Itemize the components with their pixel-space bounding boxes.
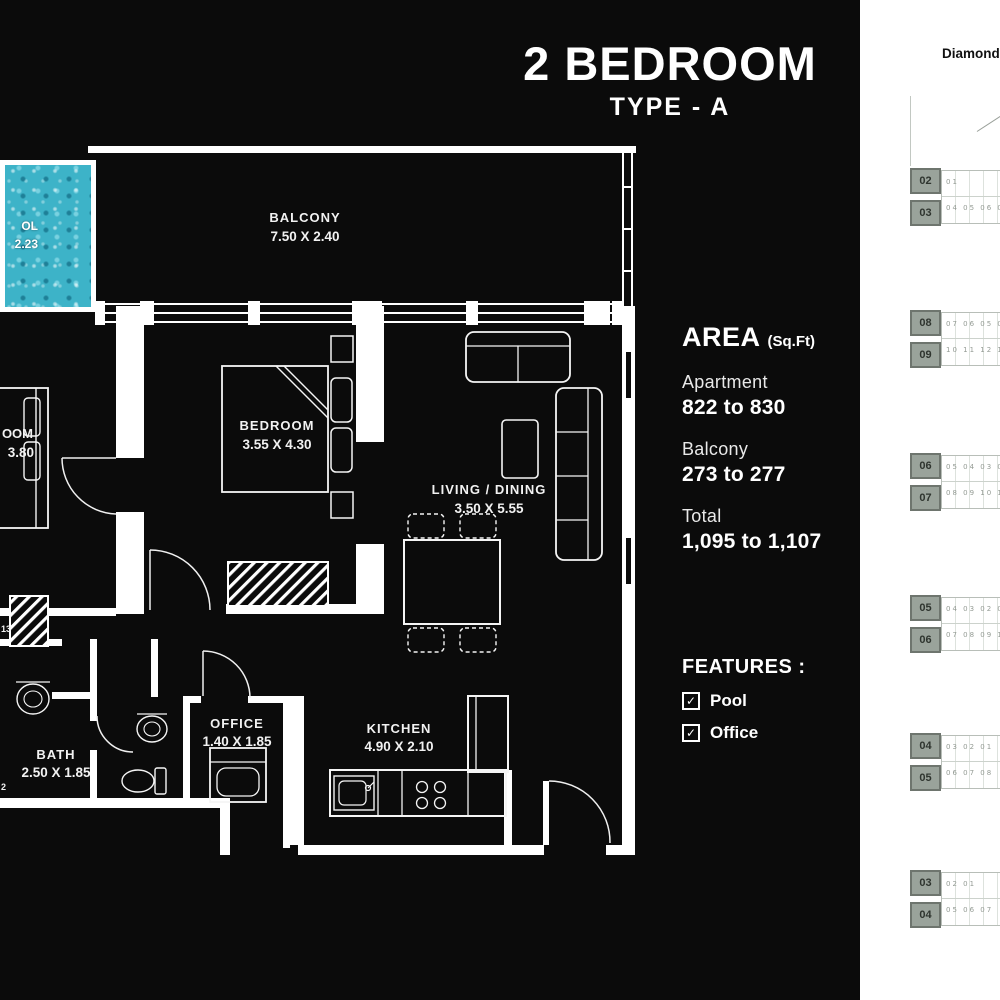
keyplan-plate: 01 04 05 06 07 08 09 [941,170,1000,224]
area-row-apartment: Apartment 822 to 830 [682,372,852,420]
brand-label: Diamondz [942,46,1000,61]
kitchen-fixtures [330,696,508,816]
keyplan-units-row: 03 02 01 [946,743,1000,751]
area-info: AREA (Sq.Ft) Apartment 822 to 830 Balcon… [682,322,852,554]
area-title: AREA [682,322,761,353]
keyplan-units-row: 05 06 07 [946,906,1000,914]
bath-dim: 2.50 X 1.85 [21,765,91,780]
feature-label: Pool [710,691,747,711]
area-row-value: 1,095 to 1,107 [682,530,852,554]
keyplan-unit-badge: 06 [910,627,941,653]
area-heading: AREA (Sq.Ft) [682,322,852,353]
keyplan-sidebar: Diamondz 02 03 01 04 05 06 07 08 09 08 0… [860,0,1000,1000]
keyplan-outline-line [910,96,911,166]
office-label: OFFICE [210,716,264,731]
keyplan-plate: 05 04 03 02 01 08 09 10 11 12 [941,455,1000,509]
keyplan-3: 06 07 05 04 03 02 01 08 09 10 11 12 [860,453,1000,533]
office-dim: 1.40 X 1.85 [202,734,272,749]
keyplan-plate: 07 06 05 04 03 02 01 10 11 12 13 14 15 1… [941,312,1000,366]
edge-fragment-1: 13 [1,624,11,634]
area-row-value: 822 to 830 [682,396,852,420]
balcony-label: BALCONY [269,210,340,225]
left-bedroom-label-fragment: OOM [2,426,33,441]
keyplan-5: 04 05 03 02 01 06 07 08 [860,733,1000,813]
keyplan-unit-badge: 07 [910,485,941,511]
wardrobe-hatch [228,562,328,606]
features-heading: FEATURES : [682,656,806,679]
keyplan-plate: 03 02 01 06 07 08 [941,735,1000,789]
features-section: FEATURES : ✓ Pool ✓ Office [682,656,806,743]
keyplan-units-row: 10 11 12 13 14 15 16 [946,346,1000,354]
area-row-balcony: Balcony 273 to 277 [682,439,852,487]
bedroom-label: BEDROOM [240,418,315,433]
keyplan-unit-badge: 02 [910,168,941,194]
floorplan-page: { "title": {"main": "2 BEDROOM", "sub": … [0,0,1000,1000]
edge-fragment-2: 2 [1,782,6,792]
feature-pool: ✓ Pool [682,691,806,711]
feature-label: Office [710,723,758,743]
keyplan-unit-badge: 03 [910,870,941,896]
area-row-label: Total [682,506,852,527]
doors [62,458,610,843]
keyplan-unit-badge: 04 [910,902,941,928]
keyplan-plate: 02 01 05 06 07 [941,872,1000,926]
keyplan-units-row: 07 06 05 04 03 02 01 [946,320,1000,328]
area-row-label: Apartment [682,372,852,393]
area-row-value: 273 to 277 [682,463,852,487]
keyplan-units-row: 04 05 06 07 08 09 [946,204,1000,212]
keyplan-pointer-line [977,109,1000,132]
keyplan-units-row: 07 08 09 10 [946,631,1000,639]
keyplan-units-row: 02 01 [946,880,1000,888]
keyplan-6: 03 04 02 01 05 06 07 [860,870,1000,950]
keyplan-2: 08 09 07 06 05 04 03 02 01 10 11 12 13 1… [860,310,1000,390]
bath-label: BATH [36,747,75,762]
living-label: LIVING / DINING [432,482,547,497]
area-row-total: Total 1,095 to 1,107 [682,506,852,554]
kitchen-label: KITCHEN [367,721,432,736]
keyplan-unit-badge: 03 [910,200,941,226]
floorplan-panel: OL 2.23 2 BEDROOM TYPE - A [0,0,860,1000]
left-bedroom-dim-fragment: 3.80 [8,445,34,460]
area-unit: (Sq.Ft) [768,333,815,350]
keyplan-units-row: 06 07 08 [946,769,1000,777]
kitchen-dim: 4.90 X 2.10 [364,739,433,754]
keyplan-unit-badge: 05 [910,595,941,621]
keyplan-units-row: 05 04 03 02 01 [946,463,1000,471]
checkbox-check-icon: ✓ [682,724,700,742]
keyplan-unit-badge: 06 [910,453,941,479]
keyplan-unit-badge: 09 [910,342,941,368]
living-dim: 3.50 X 5.55 [454,501,524,516]
keyplan-1: 02 03 01 04 05 06 07 08 09 [860,168,1000,248]
keyplan-4: 05 06 04 03 02 01 07 08 09 10 [860,595,1000,675]
keyplan-unit-badge: 08 [910,310,941,336]
entrance-door-leaf [543,781,549,845]
keyplan-units-row: 01 [946,178,1000,186]
balcony-dim: 7.50 X 2.40 [270,229,339,244]
keyplan-unit-badge: 05 [910,765,941,791]
keyplan-unit-badge: 04 [910,733,941,759]
outer-walls [0,146,636,855]
checkbox-check-icon: ✓ [682,692,700,710]
keyplan-units-row: 04 03 02 01 [946,605,1000,613]
storage-hatch [10,596,48,646]
keyplan-units-row: 08 09 10 11 12 [946,489,1000,497]
keyplan-plate: 04 03 02 01 07 08 09 10 [941,597,1000,651]
feature-office: ✓ Office [682,723,806,743]
office-furniture [210,748,266,802]
bedroom-dim: 3.55 X 4.30 [242,437,311,452]
area-row-label: Balcony [682,439,852,460]
